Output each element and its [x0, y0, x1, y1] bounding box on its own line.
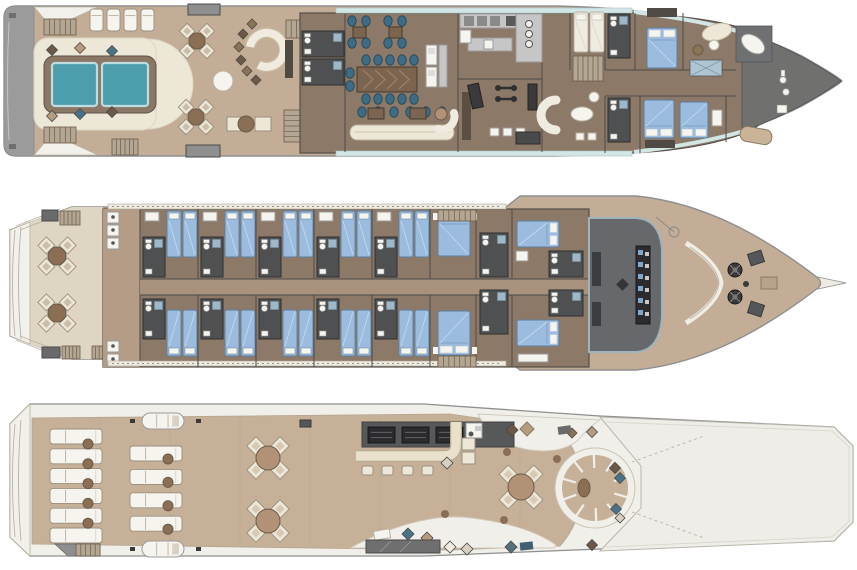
cabin-bath: [375, 237, 397, 277]
sun-lounger: [50, 488, 102, 503]
chart-desk: [592, 302, 601, 326]
deck-3-sun-plan: [10, 404, 853, 557]
weight-rack: [528, 84, 537, 110]
sun-lounger: [107, 9, 120, 31]
side-table: [163, 454, 173, 464]
twin-bed: [399, 211, 413, 257]
side-table: [500, 516, 508, 524]
dining-chair: [398, 16, 406, 26]
twin-bed: [399, 310, 413, 356]
side-table: [163, 501, 173, 511]
cleat: [196, 419, 201, 423]
side-table: [83, 439, 93, 449]
twin-bed: [299, 211, 313, 257]
console-screen: [645, 312, 649, 316]
side-table: [83, 498, 93, 508]
appliance-door: [111, 344, 115, 348]
twin-bed: [357, 211, 371, 257]
console-screen: [638, 310, 643, 315]
console-screen: [645, 264, 649, 268]
side-table: [83, 518, 93, 528]
console-screen: [645, 300, 649, 304]
bar-stool: [422, 466, 433, 475]
bar-stool: [382, 466, 393, 475]
pool-water: [102, 63, 148, 106]
cafe-table: [462, 452, 475, 464]
dining-chair: [348, 16, 356, 26]
pantry-door: [428, 48, 435, 54]
deck-locker: [42, 347, 60, 358]
deck-plans-svg: [0, 0, 857, 570]
bar-shelf: [475, 426, 481, 431]
lounge-table: [578, 479, 590, 497]
desk: [712, 110, 722, 126]
weight-plate: [511, 85, 517, 91]
dining-chair: [374, 55, 382, 65]
stairs: [44, 127, 76, 143]
dining-chair: [398, 38, 406, 48]
dining-chair: [410, 94, 418, 104]
deck-locker: [300, 420, 311, 427]
double-bed: [517, 320, 559, 346]
twin-bed: [225, 211, 239, 257]
bidet: [783, 89, 790, 96]
jet-tender: [142, 541, 184, 557]
twin-bed: [183, 211, 197, 257]
wardrobe: [516, 251, 528, 261]
day-head: [302, 31, 344, 57]
twin-bed: [283, 310, 297, 356]
toilet-tank: [781, 70, 785, 77]
dining-chair: [398, 94, 406, 104]
console-screen: [645, 276, 649, 280]
stool: [490, 128, 499, 136]
stairs: [573, 56, 603, 81]
stool: [588, 133, 596, 140]
console-screen: [645, 288, 649, 292]
nightstand: [433, 213, 438, 220]
cafe-table: [410, 108, 426, 119]
stool: [503, 128, 512, 136]
stairs: [60, 211, 80, 225]
twin-bed: [341, 310, 355, 356]
twin-bed: [341, 211, 355, 257]
cabin-bath: [259, 237, 281, 277]
sun-lounger: [130, 516, 182, 531]
cleat: [130, 419, 135, 423]
stairs: [112, 139, 138, 155]
twin-bed: [167, 211, 181, 257]
appliance: [477, 16, 487, 26]
corridor: [140, 279, 589, 295]
console-screen: [638, 250, 643, 255]
desk: [377, 212, 391, 221]
twin-bed: [574, 12, 588, 52]
double-bed: [517, 221, 559, 247]
cafe-table: [389, 27, 402, 38]
twin-bed: [357, 310, 371, 356]
deck-2-main-plan: [10, 196, 846, 370]
pool-water: [52, 63, 97, 106]
dining-chair: [362, 55, 370, 65]
sun-lounger: [50, 449, 102, 464]
cabin-bath: [480, 290, 508, 334]
dining-chair: [362, 16, 370, 26]
burner: [526, 31, 533, 38]
appliance-door: [111, 215, 115, 219]
cleat: [9, 13, 16, 18]
cushion: [520, 541, 534, 550]
dining-chair: [384, 16, 392, 26]
bbq-grill: [402, 427, 429, 443]
weight-plate: [495, 85, 501, 91]
cabin-bath: [317, 299, 339, 339]
cafe-table: [353, 27, 366, 38]
cabin-bath: [549, 251, 583, 277]
twin-bed: [167, 310, 181, 356]
dining-chair: [362, 94, 370, 104]
bar-stool: [362, 466, 373, 475]
side-table: [83, 459, 93, 469]
fridge: [460, 30, 471, 43]
appliance: [490, 16, 500, 26]
console-screen: [638, 262, 643, 267]
desk: [319, 212, 333, 221]
sun-lounger: [90, 9, 103, 31]
cabin-bath: [375, 299, 397, 339]
dining-chair: [386, 94, 394, 104]
window-band: [336, 151, 632, 156]
twin-bed: [283, 211, 297, 257]
jet-tender: [142, 413, 184, 429]
armchair: [435, 108, 447, 120]
appliance-door: [111, 357, 115, 361]
cabin-bath: [480, 233, 508, 277]
desk: [261, 212, 275, 221]
twin-bed: [241, 310, 255, 356]
twin-bed: [415, 211, 429, 257]
anchor-winch: [728, 290, 742, 304]
gym-cabinet: [462, 92, 471, 140]
appliance: [506, 16, 516, 26]
cleat: [9, 144, 16, 149]
pantry-door: [428, 70, 435, 76]
desk: [145, 212, 159, 221]
sun-lounger: [50, 429, 102, 444]
sun-lounger: [130, 493, 182, 508]
burner: [526, 41, 533, 48]
stairs: [76, 544, 100, 556]
dining-chair: [384, 38, 392, 48]
gym-bench: [516, 132, 540, 144]
deck-locker: [186, 145, 220, 157]
cabin-bath: [201, 237, 223, 277]
cabin-bath: [143, 299, 165, 339]
double-bed: [647, 28, 677, 68]
double-bed: [680, 102, 708, 138]
double-bed: [438, 311, 470, 355]
dining-chair: [374, 94, 382, 104]
twin-bed: [299, 310, 313, 356]
console-screen: [638, 286, 643, 291]
dining-chair: [398, 55, 406, 65]
console-screen: [638, 274, 643, 279]
console-screen: [638, 298, 643, 303]
cabin-bath: [608, 98, 630, 142]
appliance-door: [111, 241, 115, 245]
bar-sink: [469, 432, 474, 437]
sun-lounger: [141, 9, 154, 31]
stairs: [62, 346, 80, 359]
stool: [576, 133, 584, 140]
cabin-bath: [317, 237, 339, 277]
twin-bed: [415, 310, 429, 356]
appliance-door: [111, 228, 115, 232]
sun-lounger: [50, 528, 102, 543]
side-table: [83, 479, 93, 489]
chart-desk: [592, 252, 601, 286]
sun-lounger: [130, 446, 182, 461]
sink: [484, 40, 493, 49]
appliance: [464, 16, 474, 26]
dining-chair: [358, 107, 366, 117]
closet: [645, 140, 675, 148]
stairs: [438, 356, 476, 367]
cabin-bath: [201, 299, 223, 339]
deck-1-upper-plan: [4, 4, 842, 157]
twin-bed: [225, 310, 239, 356]
nightstand: [433, 347, 438, 354]
burner: [526, 21, 533, 28]
side-table: [238, 116, 254, 132]
round-table: [213, 71, 233, 91]
closet: [647, 8, 677, 17]
cabin-bath: [259, 299, 281, 339]
nightstand: [472, 347, 477, 354]
twin-bed: [241, 211, 255, 257]
cabin-bath: [608, 14, 630, 58]
twin-bed: [183, 310, 197, 356]
cafe-table: [462, 438, 475, 450]
deck-locker: [188, 4, 220, 15]
side-table: [163, 524, 173, 534]
seat: [255, 117, 271, 131]
deck-locker: [42, 210, 58, 221]
side-table: [163, 477, 173, 487]
sun-lounger: [130, 469, 182, 484]
stairs: [438, 210, 476, 221]
bar-shelf: [285, 40, 293, 78]
dining-chair: [346, 68, 354, 78]
sun-lounger: [50, 469, 102, 484]
sun-lounger: [50, 508, 102, 523]
aft-deck: [30, 207, 103, 359]
cleat: [130, 547, 135, 551]
armchair: [693, 45, 703, 55]
yacht-deck-plans: [0, 0, 857, 570]
double-bed: [644, 100, 674, 138]
dining-chair: [390, 107, 398, 117]
side-table: [709, 40, 719, 50]
anchor-winch: [728, 263, 742, 277]
counter: [439, 45, 447, 87]
desk: [203, 212, 217, 221]
dining-chair: [362, 38, 370, 48]
dining-chair: [348, 38, 356, 48]
bar-stool: [402, 466, 413, 475]
anchor-locker: [761, 277, 777, 289]
stairs: [44, 19, 76, 35]
toilet: [780, 77, 787, 84]
dining-chair: [346, 81, 354, 91]
weight-plate: [495, 96, 501, 102]
stair-housing: [366, 540, 440, 553]
cabin-bath: [143, 237, 165, 277]
sink: [777, 105, 787, 113]
sun-lounger: [124, 9, 137, 31]
cleat: [196, 547, 201, 551]
side-table: [589, 92, 599, 102]
weight-plate: [511, 96, 517, 102]
bbq-grill: [368, 427, 395, 443]
sofa: [518, 354, 548, 362]
dining-chair: [386, 55, 394, 65]
side-table: [553, 455, 561, 463]
oval-table: [571, 107, 593, 121]
console-screen: [645, 252, 649, 256]
twin-bed: [590, 12, 604, 52]
dining-chair: [410, 55, 418, 65]
side-table: [503, 448, 511, 456]
cabin-bath: [549, 290, 583, 316]
day-head: [302, 59, 344, 85]
cafe-table: [368, 108, 384, 119]
bollard: [743, 281, 749, 287]
side-table: [441, 510, 449, 518]
